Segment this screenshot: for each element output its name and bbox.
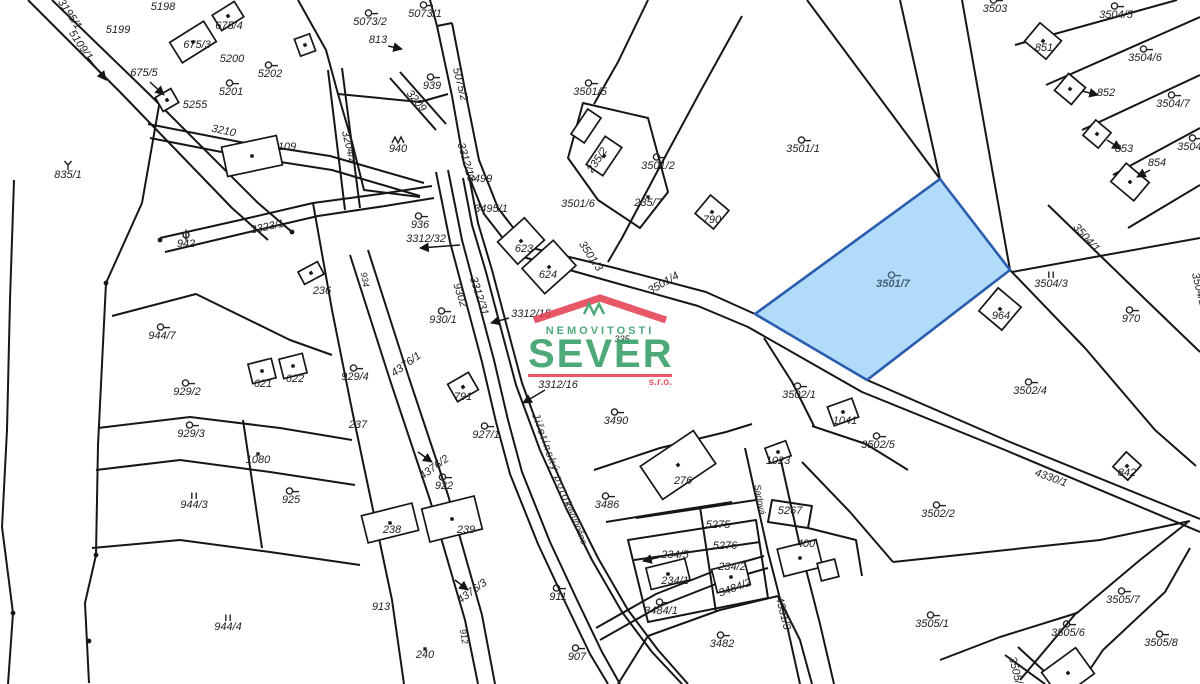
parcel-label: 3490 bbox=[604, 415, 629, 427]
parcel-label: 854 bbox=[1148, 157, 1166, 169]
parcel-label: 853 bbox=[1115, 143, 1134, 155]
parcel-label: 5199 bbox=[106, 24, 130, 36]
parcel-label: 400 bbox=[797, 538, 816, 550]
parcel-label: 239 bbox=[456, 524, 475, 536]
boundary-line bbox=[313, 203, 404, 684]
parcel-label: 3502/1 bbox=[782, 389, 816, 401]
building-footprint bbox=[979, 288, 1021, 330]
parcel-label: 3501/5 bbox=[573, 86, 608, 98]
parcel-label: 907 bbox=[568, 651, 587, 663]
boundary-line bbox=[634, 542, 760, 560]
parcel-label: 3312/16 bbox=[538, 379, 579, 391]
building-dot-icon bbox=[250, 154, 254, 158]
parcel-label: 925 bbox=[282, 494, 301, 506]
parcel-label: 3505/1 bbox=[915, 618, 949, 630]
parcel-label: 3312/32 bbox=[406, 233, 446, 245]
reference-arrow-icon bbox=[88, 58, 106, 80]
parcel-label: 3502/2 bbox=[921, 508, 955, 520]
parcel-label: 922 bbox=[435, 480, 453, 492]
boundary-line bbox=[1048, 205, 1200, 352]
parcel-label: 234/5 bbox=[660, 549, 689, 561]
boundary-line bbox=[92, 540, 360, 565]
boundary-line bbox=[867, 380, 1200, 519]
parcel-label: 234/1 bbox=[660, 575, 689, 587]
parcel-label: 851 bbox=[1035, 42, 1053, 54]
parcel-label: 5198 bbox=[151, 1, 176, 13]
parcel-label: 3501/3 bbox=[576, 239, 605, 274]
parcel-label: 5275 bbox=[706, 519, 731, 531]
parcel-label: 236 bbox=[312, 285, 332, 297]
parcel-label: 5073/1 bbox=[408, 8, 442, 20]
parcel-label: 3312/31 bbox=[467, 275, 491, 317]
parcel-label: 1041 bbox=[833, 415, 857, 427]
parcel-label: 335 bbox=[614, 334, 630, 344]
parcel-label: 939 bbox=[423, 80, 441, 92]
parcel-label: 109 bbox=[278, 141, 296, 153]
parcel-label: 3323/1 bbox=[250, 218, 285, 237]
parcel-label: 930/1 bbox=[429, 314, 457, 326]
boundary-line bbox=[85, 100, 160, 683]
parcel-label: 791 bbox=[454, 391, 472, 403]
parcel-label: 940 bbox=[389, 143, 408, 155]
parcel-label: 5267 bbox=[778, 505, 803, 517]
parcel-label: 5255 bbox=[183, 99, 208, 111]
parcel-label: 944/3 bbox=[180, 499, 208, 511]
parcel-label: 3503 bbox=[983, 3, 1008, 15]
reference-arrow-icon bbox=[1082, 91, 1098, 95]
parcel-label: 234/2 bbox=[717, 561, 746, 573]
parcel-label: 240 bbox=[415, 649, 435, 661]
parcel-label: 3501/1 bbox=[786, 143, 820, 155]
parcel-label: 5202 bbox=[258, 68, 282, 80]
survey-point-icon bbox=[11, 611, 16, 616]
boundary-line bbox=[437, 26, 516, 255]
building-footprint bbox=[571, 109, 601, 143]
survey-point-icon bbox=[87, 639, 92, 644]
parcel-label: 3504/2 bbox=[1189, 271, 1200, 307]
boundary-line bbox=[98, 417, 352, 440]
parcel-label: 4376/1 bbox=[389, 350, 423, 379]
parcel-label: 675/3 bbox=[183, 39, 211, 51]
building-dot-icon bbox=[256, 452, 259, 455]
reference-arrow-icon bbox=[150, 82, 164, 95]
building-footprint bbox=[361, 503, 418, 543]
parcel-label: 964 bbox=[992, 310, 1010, 322]
parcel-label: 1023 bbox=[766, 455, 791, 467]
parcel-label: 1080 bbox=[246, 454, 271, 466]
parcel-label: 3484/1 bbox=[644, 605, 678, 617]
parcel-label: 3505/6 bbox=[1051, 627, 1086, 639]
parcel-label: 927/1 bbox=[472, 429, 500, 441]
building-dot-icon bbox=[423, 647, 426, 650]
cadastral-map: 3195/15109/15198675/45199675/3675/552005… bbox=[0, 0, 1200, 684]
parcel-label: 970 bbox=[1122, 313, 1141, 325]
parcel-label: 9302 bbox=[450, 282, 469, 309]
building-footprint bbox=[817, 559, 839, 581]
parcel-label: 4331/3 bbox=[773, 595, 793, 631]
parcel-label: 3501/6 bbox=[561, 198, 596, 210]
boundary-line bbox=[28, 0, 268, 240]
parcel-label: 3505/7 bbox=[1106, 594, 1141, 606]
parcel-label: 3504/7 bbox=[1156, 98, 1191, 110]
boundary-line bbox=[636, 500, 756, 518]
parcel-label: 3505/5 bbox=[1006, 655, 1026, 684]
parcel-label: 3501/2 bbox=[641, 160, 675, 172]
building-footprint bbox=[294, 34, 315, 56]
building-dot-icon bbox=[646, 195, 649, 198]
boundary-line bbox=[608, 16, 742, 262]
parcel-label: 3505/8 bbox=[1144, 637, 1179, 649]
reference-arrow-icon bbox=[388, 46, 402, 49]
building-footprint bbox=[1042, 648, 1095, 684]
parcel-label: 3501/7 bbox=[876, 278, 911, 290]
building-footprint bbox=[221, 136, 282, 177]
parcel-label: 790 bbox=[703, 214, 722, 226]
parcel-label: 624 bbox=[539, 269, 557, 281]
boundary-line bbox=[52, 0, 292, 232]
parcel-label: 929/3 bbox=[177, 428, 205, 440]
reference-arrow-icon bbox=[420, 245, 460, 248]
parcel-label: 3504/3 bbox=[1034, 278, 1069, 290]
parcel-label: 3504/6 bbox=[1128, 52, 1163, 64]
parcel-label: 276 bbox=[673, 475, 693, 487]
building-footprint bbox=[1111, 163, 1149, 201]
parcel-label: 912 bbox=[458, 628, 470, 645]
parcel-label: 3495/1 bbox=[474, 203, 508, 215]
boundary-line bbox=[1080, 548, 1190, 684]
boundary-line bbox=[1012, 238, 1200, 272]
survey-point-icon bbox=[290, 230, 295, 235]
parcel-label: 835/1 bbox=[54, 169, 82, 181]
parcel-label: 675/4 bbox=[215, 20, 243, 32]
parcel-label: 852 bbox=[1097, 87, 1115, 99]
parcel-label: 5276 bbox=[713, 540, 738, 552]
parcel-label: 235/7 bbox=[633, 197, 662, 209]
parcel-label: 621 bbox=[254, 378, 272, 390]
parcel-label: 944/7 bbox=[148, 330, 176, 342]
building-footprint bbox=[640, 431, 715, 500]
parcel-label: 238 bbox=[382, 524, 402, 536]
boundary-line bbox=[2, 180, 14, 684]
parcel-label: 3502/5 bbox=[861, 439, 896, 451]
boundary-line bbox=[350, 255, 478, 684]
parcel-label: 3482 bbox=[710, 638, 734, 650]
parcel-label: Jiřetínský potok bbox=[529, 411, 575, 510]
reference-arrow-icon bbox=[418, 452, 432, 462]
building-footprint bbox=[1083, 120, 1111, 148]
parcel-label: 3502/4 bbox=[1013, 385, 1047, 397]
parcel-label: zatrubněno bbox=[564, 499, 589, 546]
parcel-label: 5200 bbox=[220, 53, 245, 65]
parcel-label: 913 bbox=[372, 601, 391, 613]
parcel-map-canvas: 3195/15109/15198675/45199675/3675/552005… bbox=[0, 0, 1200, 684]
parcel-label: 3499 bbox=[468, 173, 492, 185]
parcel-label: 3504/1 bbox=[1071, 221, 1102, 254]
parcel-label: 944/4 bbox=[214, 621, 242, 633]
parcel-label: 842 bbox=[1118, 467, 1136, 479]
parcel-label: 3486 bbox=[595, 499, 620, 511]
survey-point-icon bbox=[104, 281, 109, 286]
boundary-line bbox=[96, 460, 355, 485]
survey-point-icon bbox=[94, 553, 99, 558]
parcel-label: 3312/15 bbox=[511, 308, 552, 320]
parcel-label: 237 bbox=[348, 419, 368, 431]
parcel-label: 5073/2 bbox=[353, 16, 387, 28]
boundary-line bbox=[1010, 270, 1196, 466]
parcel-label: 911 bbox=[549, 591, 567, 603]
boundary-line bbox=[437, 23, 452, 26]
parcel-label: 5109/1 bbox=[66, 28, 95, 63]
building-footprint bbox=[298, 262, 324, 285]
parcel-label: 936 bbox=[411, 219, 430, 231]
parcel-label: 813 bbox=[369, 34, 388, 46]
boundary-line bbox=[112, 294, 332, 355]
parcel-label: 3504/8 bbox=[1177, 141, 1200, 153]
parcel-label: 622 bbox=[286, 373, 304, 385]
parcel-label: 5201 bbox=[219, 86, 243, 98]
survey-point-icon bbox=[158, 238, 163, 243]
parcel-label: 675/5 bbox=[130, 67, 158, 79]
parcel-label: 929/4 bbox=[341, 371, 369, 383]
parcel-label: 3195/1 bbox=[55, 0, 84, 32]
parcel-label: 929/2 bbox=[173, 386, 201, 398]
parcel-label: 3504/5 bbox=[1099, 9, 1134, 21]
boundary-line bbox=[148, 124, 424, 183]
boundary-line bbox=[243, 420, 262, 548]
parcel-label: 623 bbox=[515, 243, 534, 255]
